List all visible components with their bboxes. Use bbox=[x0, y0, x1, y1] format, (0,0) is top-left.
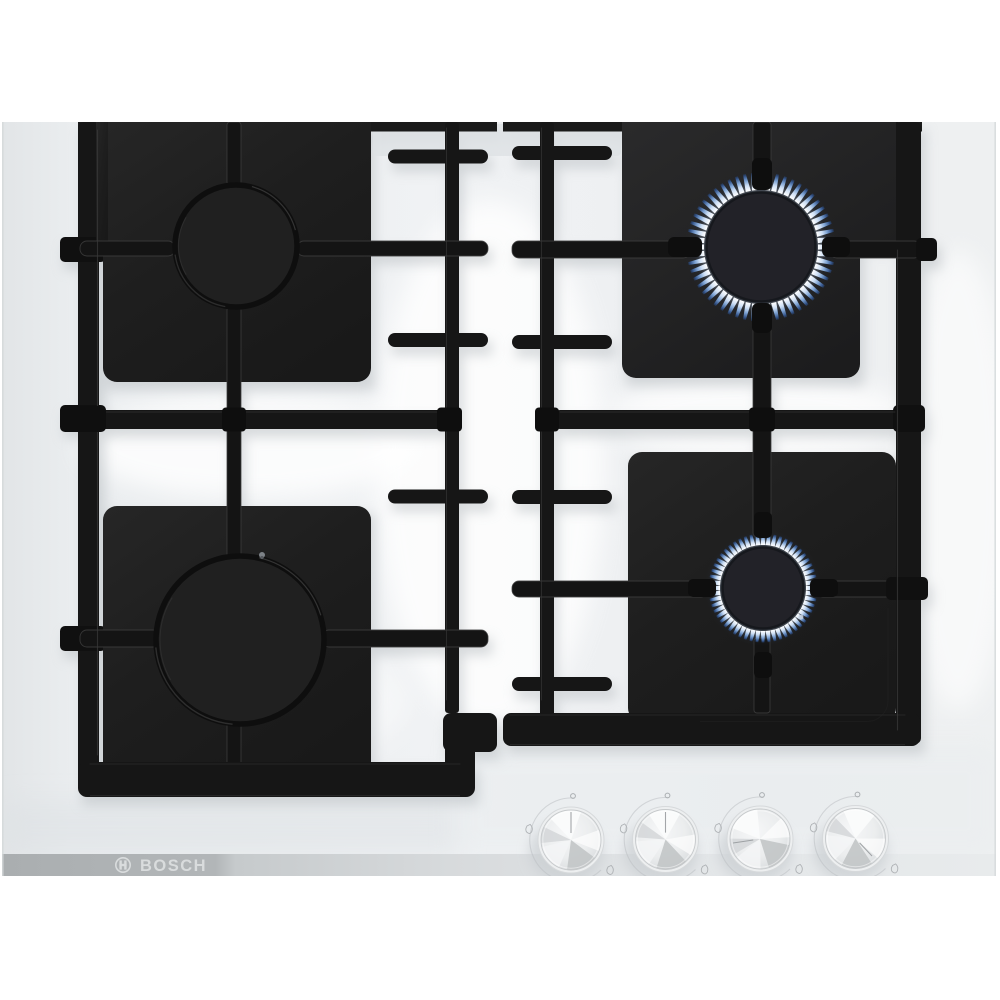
svg-text:BOSCH: BOSCH bbox=[140, 857, 207, 875]
